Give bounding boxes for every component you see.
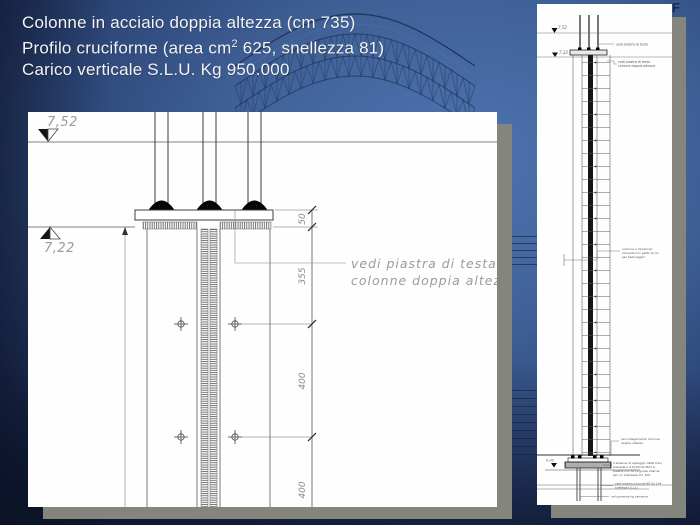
column-elevation-drawing: 7,52 vedi piastra di testa 7,22 vedi pia… [537,4,672,505]
note-head-2: colonne doppia altezza [618,64,655,68]
note-anchor-2: snellezza S.L.U. [615,486,638,490]
level-label: 7,22 [559,50,568,55]
level-marker-lower: 7,22 [40,227,75,256]
upper-rods [580,15,598,50]
plate-bolts [578,48,600,51]
level-marker-lower: 7,22 [552,50,568,57]
head-plate [570,50,607,55]
column-flange-edges [147,229,270,507]
note-grout: nel portante kg cemento [611,495,648,499]
dimension-labels: 50 355 400 400 [298,213,308,499]
arrowhead [122,227,128,235]
note-leader [611,441,619,455]
base-plate-upper [568,458,608,462]
title-line-2: Profilo cruciforme (area cm2 625, snelle… [22,34,384,59]
background-drawing-lines [512,236,537,270]
head-plate [135,210,273,220]
flange-hatch-right [220,222,271,229]
dim-50: 50 [298,213,308,225]
title-line-1: Colonne in acciaio doppia altezza (cm 73… [22,12,384,34]
upper-column-rods [155,112,261,204]
dim-400-b: 400 [298,481,308,498]
level-label-upper: 7,52 [47,115,78,130]
side-elevation-panel: 7,52 vedi piastra di testa 7,22 vedi pia… [537,4,672,505]
flange-hatch-left [143,222,197,229]
level-marker-base: 0,00 [546,459,557,468]
note-base-4: per un interasse tot. 520 [612,473,650,477]
level-marker-upper: 7,52 [552,25,568,33]
note-top: vedi piastra di testa [616,43,648,47]
note-joint-2: doppia altezza [621,441,643,445]
background-building-sketch [0,430,30,508]
title-line-3: Carico verticale S.L.U. Kg 950.000 [22,59,384,81]
web-hatch-bar [201,229,208,507]
column-splice-detail-drawing: 7,52 7,22 [28,112,497,507]
level-label: 0,00 [546,459,555,463]
dim-355: 355 [298,267,308,284]
main-drawing-panel: 7,52 7,22 [28,112,497,507]
background-letter-glyph: F [672,0,680,15]
level-marker-upper: 7,52 [38,115,78,142]
level-label: 7,52 [558,25,567,30]
bolt-ladder [582,61,610,453]
level-label-lower: 7,22 [44,241,75,256]
note-mid-3: per betonaggio [621,255,645,259]
web-hatch-bar [210,229,217,507]
background-drawing-lines [512,390,537,460]
note-line-2: colonne doppia altezza [351,273,497,288]
weld-domes [149,201,268,211]
slide-title: Colonne in acciaio doppia altezza (cm 73… [22,12,384,80]
slide: Colonne in acciaio doppia altezza (cm 73… [0,0,700,525]
anchor-rods [577,468,601,501]
note-line-1: vedi piastra di testa [351,256,497,271]
dim-400-a: 400 [298,372,308,389]
